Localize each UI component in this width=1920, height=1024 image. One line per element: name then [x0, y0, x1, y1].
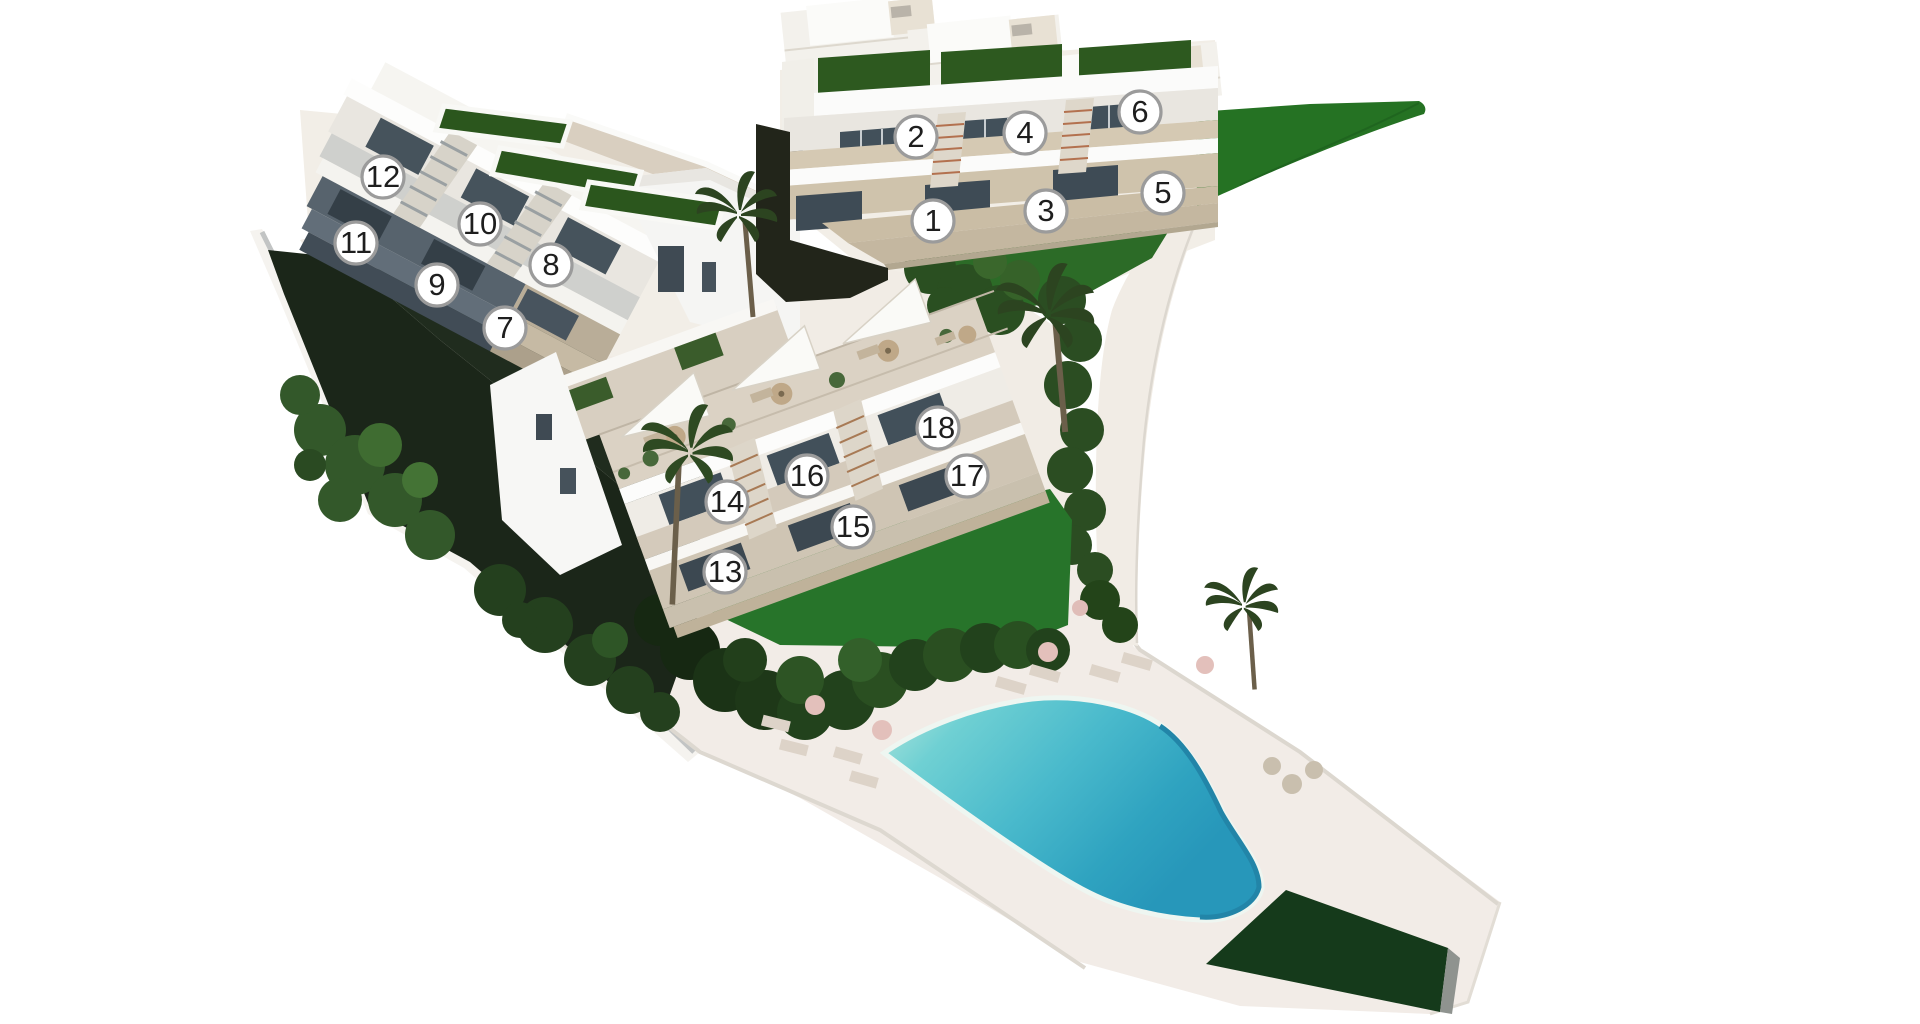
- svg-text:17: 17: [950, 458, 984, 493]
- svg-text:14: 14: [710, 484, 744, 519]
- svg-text:13: 13: [708, 554, 742, 589]
- svg-text:2: 2: [907, 119, 924, 154]
- svg-text:8: 8: [542, 247, 559, 282]
- svg-text:3: 3: [1037, 193, 1054, 228]
- svg-text:5: 5: [1154, 175, 1171, 210]
- svg-text:1: 1: [924, 203, 941, 238]
- svg-text:9: 9: [428, 267, 445, 302]
- svg-text:18: 18: [921, 410, 955, 445]
- svg-text:10: 10: [463, 206, 497, 241]
- svg-text:7: 7: [496, 310, 513, 345]
- svg-text:12: 12: [366, 159, 400, 194]
- svg-text:15: 15: [836, 509, 870, 544]
- svg-text:16: 16: [790, 458, 824, 493]
- svg-text:11: 11: [340, 225, 372, 260]
- svg-text:6: 6: [1131, 94, 1148, 129]
- svg-text:4: 4: [1016, 115, 1033, 150]
